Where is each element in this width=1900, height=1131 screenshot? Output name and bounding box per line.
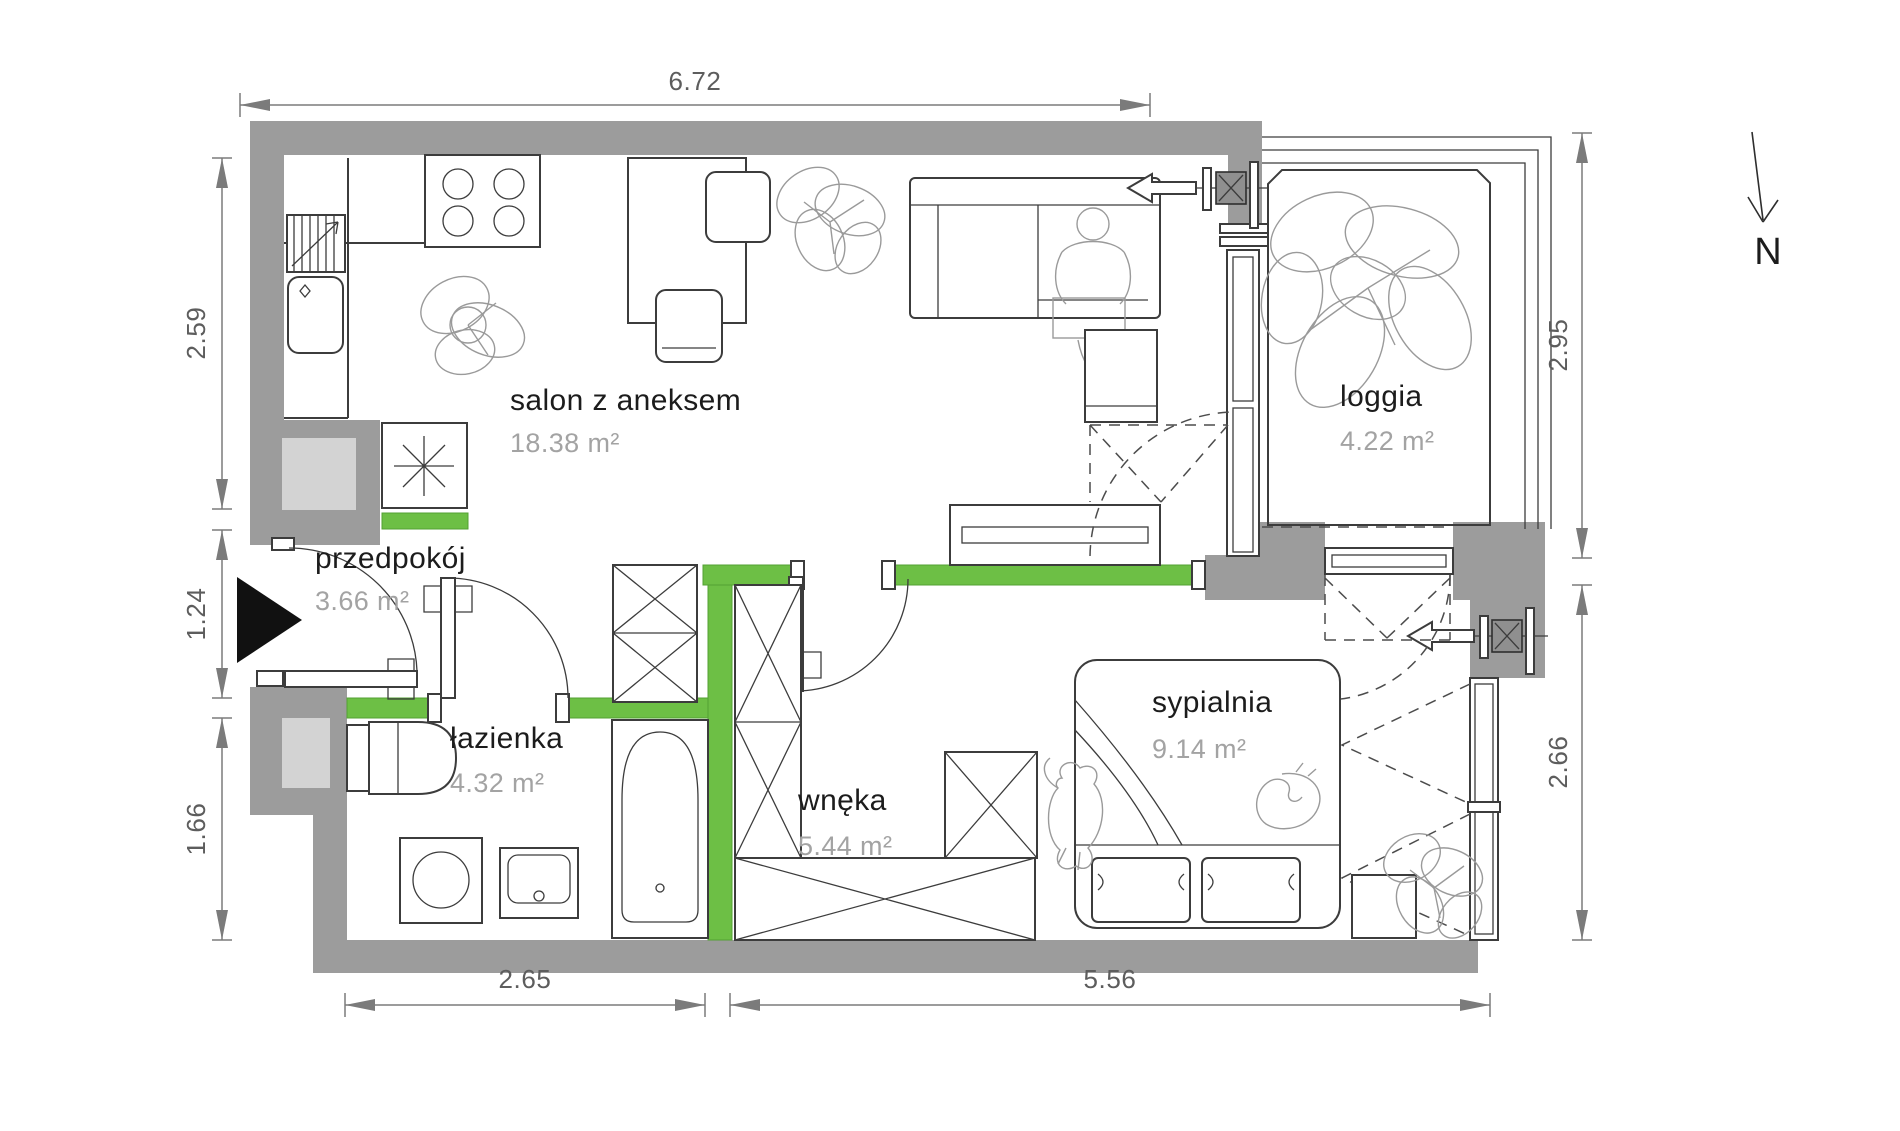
- chair: [656, 290, 722, 362]
- compass: N: [1748, 132, 1782, 273]
- chair: [706, 172, 770, 242]
- loggia-floor: [1268, 170, 1490, 525]
- dim-right-upper: 2.95: [1543, 318, 1573, 371]
- floor-plan-page: salon z aneksem 18.38 m² loggia 4.22 m² …: [0, 0, 1900, 1131]
- dim-left-middle: 1.24: [181, 587, 211, 640]
- area-lazienka: 4.32 m²: [450, 768, 544, 798]
- dim-right-lower: 2.66: [1543, 735, 1573, 788]
- label-przedpokoj: przedpokój: [315, 542, 466, 575]
- vent-flange: [1480, 616, 1488, 658]
- door-frame: [882, 561, 895, 589]
- door-hinge: [257, 671, 283, 686]
- vent-flange: [1526, 608, 1534, 674]
- wall-sypialnia-top: [1205, 555, 1325, 600]
- vent-flange: [1250, 162, 1258, 228]
- window-sill: [1220, 224, 1268, 233]
- bathtub: [612, 720, 708, 938]
- label-lazienka: łazienka: [450, 722, 563, 755]
- dim-top-value: 6.72: [668, 66, 721, 96]
- dimension-top: 6.72: [240, 66, 1150, 117]
- loggia-glazing: [1262, 137, 1551, 529]
- shaft-inset-kitchen: [282, 438, 356, 510]
- area-loggia: 4.22 m²: [1340, 426, 1434, 456]
- monstera-plant: [766, 156, 892, 283]
- area-przedpokoj: 3.66 m²: [315, 586, 409, 616]
- entrance-arrow-icon: [237, 577, 302, 663]
- dim-left-upper: 2.59: [181, 306, 211, 359]
- area-salon: 18.38 m²: [510, 428, 620, 458]
- living-area: [910, 178, 1160, 565]
- asterisk-icon: [394, 436, 454, 496]
- tv-cabinet: [950, 505, 1160, 565]
- washing-machine: [400, 838, 482, 923]
- kitchen-sink: [288, 277, 343, 353]
- pillow: [1092, 858, 1190, 922]
- entrance-door-leaf: [285, 671, 417, 687]
- toilet-tank: [347, 725, 369, 791]
- label-salon: salon z aneksem: [510, 384, 741, 417]
- loggia: [1254, 137, 1551, 529]
- hob: [425, 155, 540, 247]
- vent-flange: [1203, 168, 1211, 210]
- door-frame: [556, 694, 569, 722]
- label-loggia: loggia: [1340, 380, 1422, 413]
- window-sill: [1220, 237, 1268, 246]
- dimension-left: 2.59 1.24 1.66: [181, 158, 232, 940]
- door-frame: [428, 694, 441, 722]
- area-wneka: 5.44 m²: [798, 831, 892, 861]
- toilet: [369, 722, 456, 794]
- partition-hall-bath-left: [347, 698, 440, 718]
- partition-bath-wneka: [708, 585, 732, 940]
- coffee-table: [1085, 330, 1157, 422]
- wall-right-stub-loggia: [1453, 522, 1545, 600]
- dim-left-lower: 1.66: [181, 802, 211, 855]
- bathroom-door: [424, 578, 568, 698]
- dim-bottom-right: 5.56: [1083, 964, 1136, 994]
- partition-salon-sypialnia: [895, 565, 1205, 585]
- kitchen-plant: [411, 265, 533, 380]
- wall-bottom: [313, 940, 1478, 973]
- wall-top: [250, 121, 1262, 155]
- label-sypialnia: sypialnia: [1152, 686, 1272, 719]
- sofa: [910, 178, 1160, 318]
- label-wneka: wnęka: [797, 784, 887, 817]
- door-tilt-indicator: [1090, 425, 1228, 502]
- north-label: N: [1754, 231, 1781, 273]
- pillow: [1202, 858, 1300, 922]
- window-top: [1325, 548, 1453, 574]
- balcony-window-frame: [1227, 250, 1259, 556]
- dining-area: [628, 156, 892, 362]
- dim-bottom-left: 2.65: [498, 964, 551, 994]
- door-swing: [448, 578, 568, 698]
- partition-salon-hall-stub: [382, 513, 468, 529]
- area-sypialnia: 9.14 m²: [1152, 734, 1246, 764]
- floor-plan: salon z aneksem 18.38 m² loggia 4.22 m² …: [0, 0, 1900, 1131]
- nightstand: [1352, 875, 1416, 938]
- door-leaf: [441, 578, 455, 698]
- wall-end-cap: [1192, 561, 1205, 589]
- window-mullion: [1468, 802, 1500, 812]
- north-arrow-icon: [1748, 132, 1778, 222]
- door-swing: [796, 579, 908, 691]
- shaft-inset-bath: [282, 718, 330, 788]
- washbasin: [500, 848, 578, 918]
- airflow-arrow-icon: [1408, 622, 1474, 650]
